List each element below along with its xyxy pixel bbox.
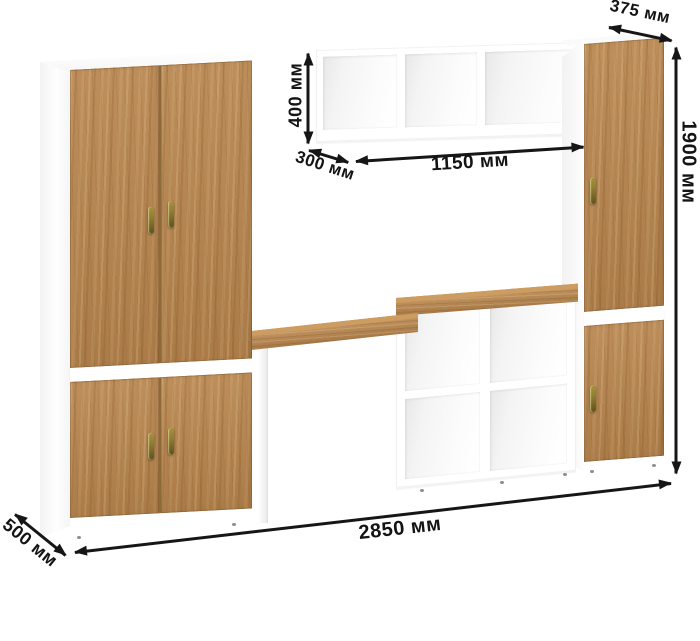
dim-label-height: 1900 мм	[677, 120, 700, 203]
cube-shelf-compartment	[490, 298, 567, 383]
door-handle	[148, 433, 154, 460]
left-cabinet-front	[70, 60, 252, 523]
furniture-dimension-diagram: 375 мм 1900 мм 400 мм 300 мм 1150 мм 285…	[0, 0, 700, 641]
dim-label-shelf-height: 400 мм	[286, 63, 307, 128]
door-handle	[148, 207, 154, 234]
left-cabinet-lower-doors	[70, 372, 252, 518]
cube-shelf-compartment	[490, 384, 567, 471]
door-handle	[590, 385, 596, 412]
cabinet-foot	[77, 536, 81, 539]
right-cabinet-front	[584, 38, 664, 470]
cabinet-foot	[420, 489, 424, 492]
cabinet-foot	[232, 523, 236, 526]
lower-door-left	[70, 377, 159, 518]
cube-shelf	[396, 291, 576, 488]
door-handle	[168, 201, 174, 228]
door-handle	[590, 177, 596, 204]
cabinet-foot	[652, 464, 656, 467]
dim-arrow-shelf-height	[307, 54, 310, 144]
desk-top-left-section	[252, 313, 418, 350]
dim-arrow-height	[675, 48, 678, 474]
left-cabinet-upper-doors	[70, 60, 252, 368]
dim-label-shelf-width: 1150 мм	[430, 150, 509, 177]
cube-shelf-compartment	[405, 392, 480, 479]
cabinet-foot	[590, 470, 594, 473]
upper-door-right	[161, 60, 252, 363]
lower-door-right	[161, 372, 252, 513]
wall-shelf-compartment	[405, 52, 477, 127]
left-cabinet-side-panel	[40, 62, 70, 538]
upper-door-left	[70, 65, 159, 368]
door-handle	[168, 428, 174, 455]
cabinet-foot	[563, 473, 567, 476]
cabinet-foot	[500, 481, 504, 484]
wall-shelf	[316, 42, 582, 142]
wall-shelf-compartment	[485, 49, 575, 125]
right-cabinet-lower-door	[584, 320, 664, 462]
right-cabinet-upper-door	[584, 38, 664, 312]
dim-label-shelf-depth: 300 мм	[293, 147, 357, 185]
wall-shelf-compartment	[323, 55, 397, 130]
desk-support-leg	[252, 345, 268, 523]
